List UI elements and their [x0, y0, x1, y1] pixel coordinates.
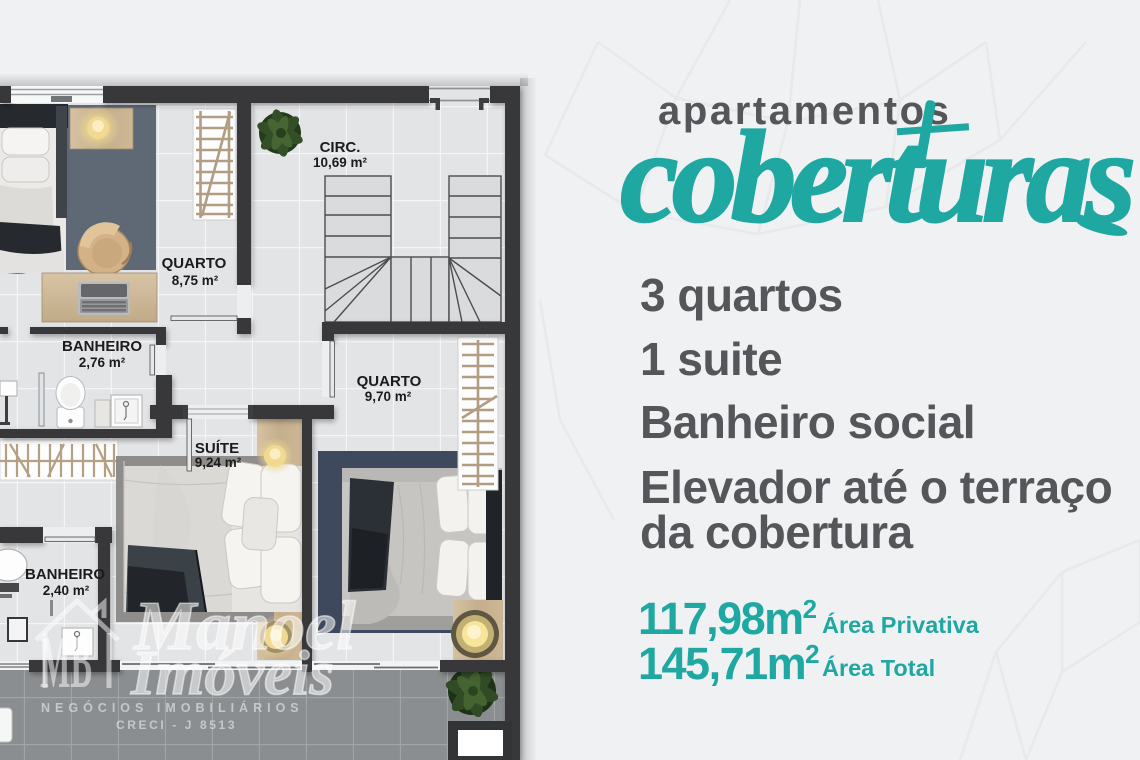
svg-text:coberturas: coberturas	[620, 103, 1133, 250]
svg-text:MB: MB	[40, 622, 92, 704]
svg-text:9,24 m²: 9,24 m²	[195, 455, 242, 470]
svg-text:10,69 m²: 10,69 m²	[313, 155, 368, 170]
svg-text:CRECI - J 8513: CRECI - J 8513	[116, 718, 237, 732]
svg-text:NEGÓCIOS IMOBILIÁRIOS: NEGÓCIOS IMOBILIÁRIOS	[41, 700, 304, 715]
svg-text:2,40 m²: 2,40 m²	[43, 583, 90, 598]
svg-text:QUARTO: QUARTO	[162, 255, 227, 272]
svg-text:Imóveis: Imóveis	[130, 638, 334, 708]
svg-text:1 suite: 1 suite	[640, 333, 782, 385]
svg-text:QUARTO: QUARTO	[357, 373, 422, 390]
svg-text:Área Total: Área Total	[822, 654, 935, 681]
svg-text:8,75 m²: 8,75 m²	[172, 273, 219, 288]
svg-text:BANHEIRO: BANHEIRO	[25, 566, 105, 583]
svg-text:da cobertura: da cobertura	[640, 506, 914, 558]
svg-text:145,71m2: 145,71m2	[638, 638, 819, 689]
svg-text:3 quartos: 3 quartos	[640, 269, 843, 321]
svg-text:2,76 m²: 2,76 m²	[79, 355, 126, 370]
svg-text:9,70 m²: 9,70 m²	[365, 389, 412, 404]
svg-text:Área Privativa: Área Privativa	[822, 611, 980, 638]
svg-text:CIRC.: CIRC.	[320, 139, 361, 156]
svg-text:117,98m2: 117,98m2	[638, 593, 817, 644]
svg-text:BANHEIRO: BANHEIRO	[62, 338, 142, 355]
svg-text:Banheiro social: Banheiro social	[640, 396, 975, 448]
